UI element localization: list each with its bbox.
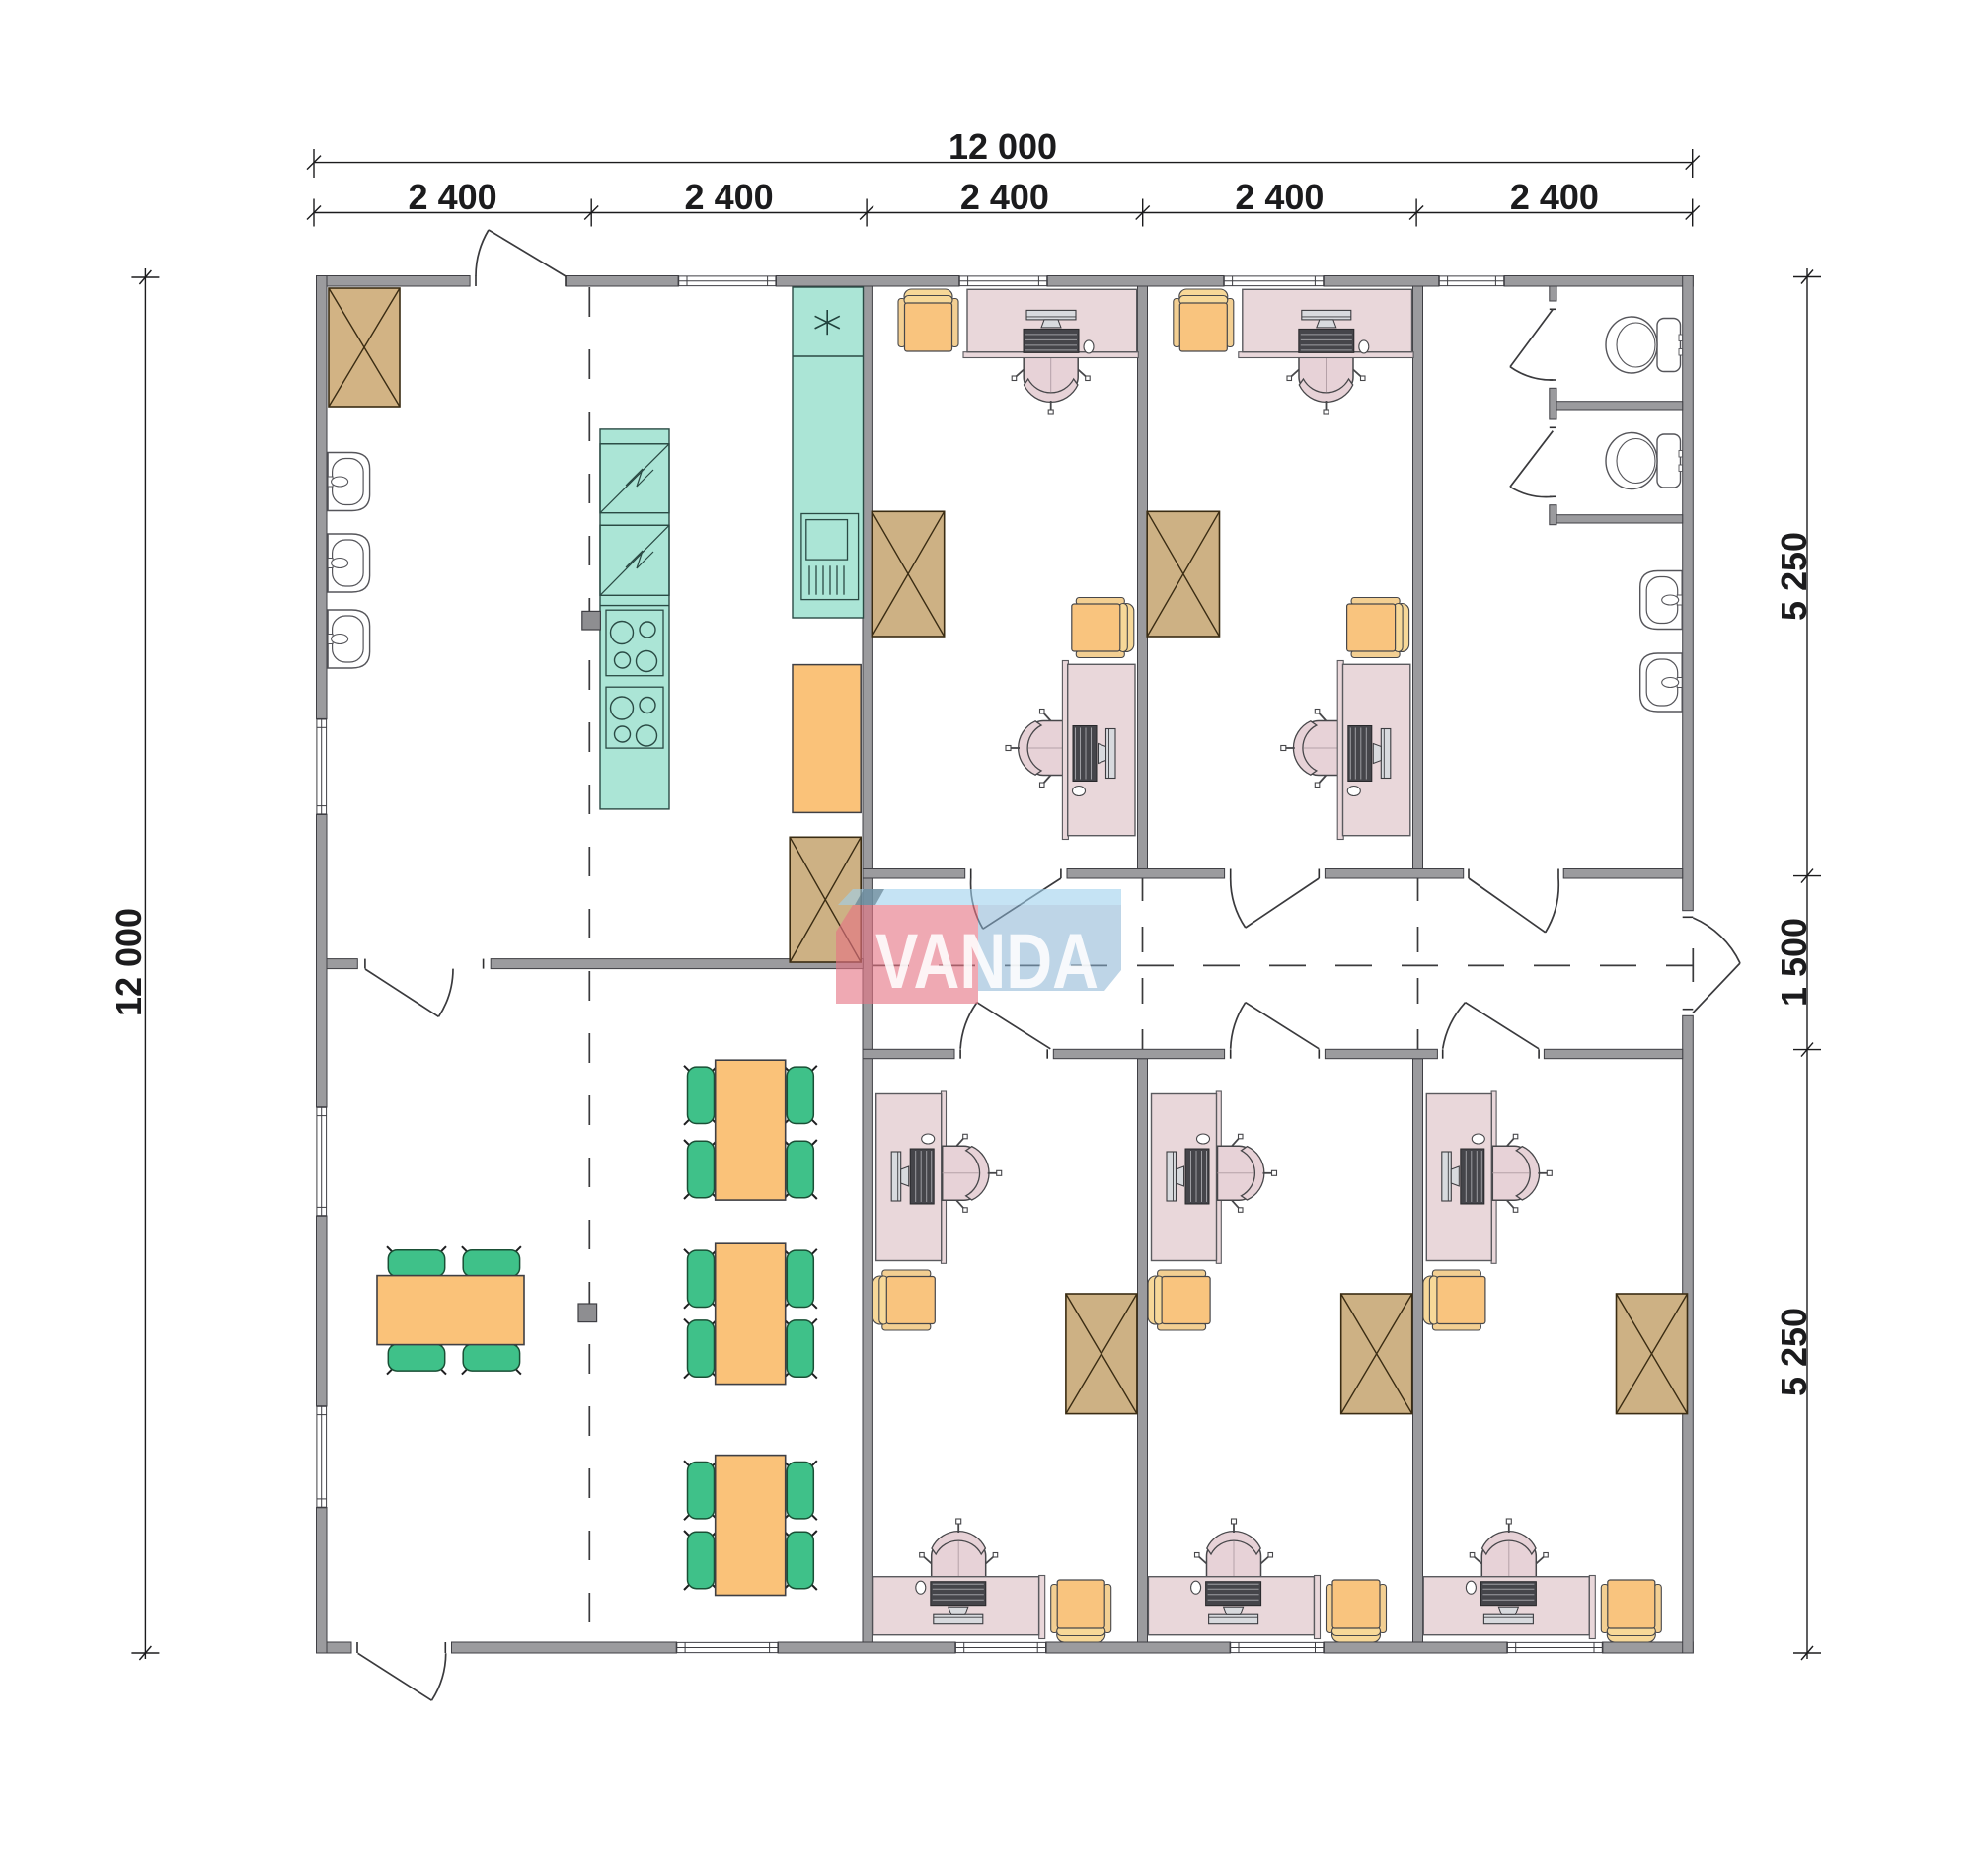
svg-text:2 400: 2 400 <box>685 177 774 217</box>
svg-text:5 250: 5 250 <box>1774 1308 1814 1396</box>
svg-text:12 000: 12 000 <box>949 126 1057 167</box>
svg-text:12 000: 12 000 <box>109 908 149 1016</box>
svg-text:2 400: 2 400 <box>1235 177 1324 217</box>
svg-text:VANDA: VANDA <box>875 917 1099 1005</box>
svg-text:5 250: 5 250 <box>1774 532 1814 621</box>
svg-text:2 400: 2 400 <box>960 177 1049 217</box>
svg-text:1 500: 1 500 <box>1774 918 1814 1007</box>
svg-text:2 400: 2 400 <box>1510 177 1599 217</box>
svg-text:2 400: 2 400 <box>409 177 497 217</box>
